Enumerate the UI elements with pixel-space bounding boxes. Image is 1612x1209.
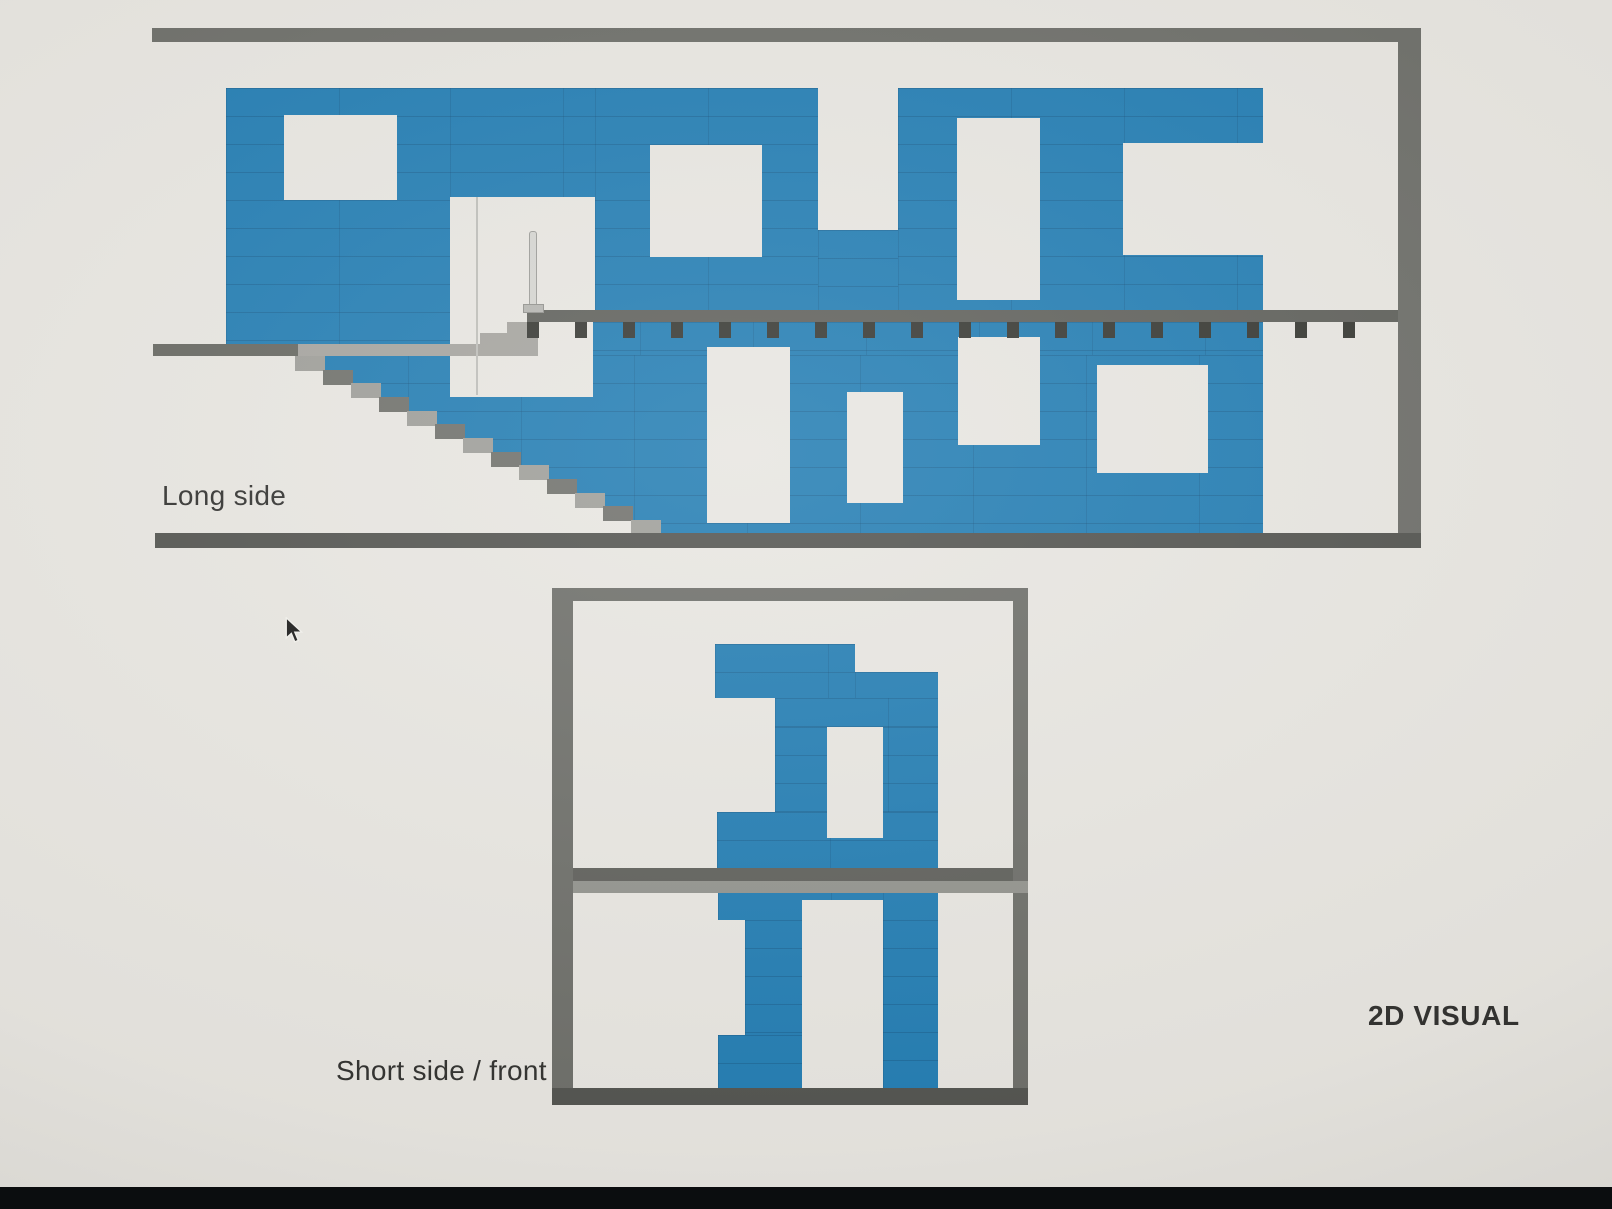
window-opening <box>958 337 1040 445</box>
stair-tread <box>491 452 521 467</box>
wall-segment <box>718 1035 802 1088</box>
floor-slab <box>573 868 1013 881</box>
stair-tread <box>379 397 409 412</box>
drawing-canvas: Long side Short side / front 2D VISUAL <box>0 0 1612 1187</box>
window-opening <box>847 392 903 503</box>
mouse-cursor <box>285 617 304 644</box>
screen: Long side Short side / front 2D VISUAL <box>0 0 1612 1209</box>
wall-segment <box>450 88 597 197</box>
stair-tread <box>547 479 577 494</box>
railing-post <box>529 231 537 309</box>
window-opening <box>1097 365 1208 473</box>
window-opening <box>957 118 1040 300</box>
frame-right-bar <box>1398 28 1421 548</box>
window-opening <box>827 727 883 838</box>
stair-tread <box>575 493 605 508</box>
visual-2d-label: 2D VISUAL <box>1368 1000 1520 1032</box>
stair-tread <box>631 520 661 534</box>
wall-segment <box>818 230 898 313</box>
wall-segment <box>715 644 855 698</box>
stair-tread <box>351 383 381 398</box>
stair-tread <box>407 411 437 426</box>
floor-slab <box>527 310 1398 322</box>
window-opening <box>707 347 790 523</box>
door-opening <box>450 197 593 397</box>
landing-bar-left <box>153 344 298 356</box>
floor-slab-underside <box>573 881 1028 893</box>
screen-bottom-bezel <box>0 1187 1612 1209</box>
window-opening <box>284 115 397 200</box>
wall-segment <box>775 698 938 727</box>
stair-tread <box>323 370 353 385</box>
frame-bottom-bar <box>155 533 1421 548</box>
stair-tread <box>603 506 633 521</box>
door-frame-line <box>476 197 478 395</box>
wall-segment <box>855 672 938 698</box>
wall-segment <box>883 892 938 1088</box>
stair-tread <box>519 465 549 480</box>
wall-notch-opening <box>1123 143 1263 255</box>
wall-segment <box>745 920 802 1035</box>
stair-tread <box>463 438 493 453</box>
frame-top-bar <box>552 588 1028 601</box>
frame-left-bar <box>552 588 573 1105</box>
floor-joist-ticks <box>527 322 1359 338</box>
long-side-label: Long side <box>162 480 286 512</box>
stair-tread <box>435 424 465 439</box>
stair-tread <box>295 356 325 371</box>
window-opening <box>650 145 762 257</box>
frame-right-bar <box>1013 588 1028 1105</box>
railing-base <box>523 304 544 313</box>
threshold-step <box>480 333 508 355</box>
frame-top-bar <box>152 28 1421 42</box>
frame-bottom-bar <box>552 1088 1028 1105</box>
short-side-label: Short side / front <box>336 1055 547 1087</box>
window-opening <box>802 900 883 1083</box>
